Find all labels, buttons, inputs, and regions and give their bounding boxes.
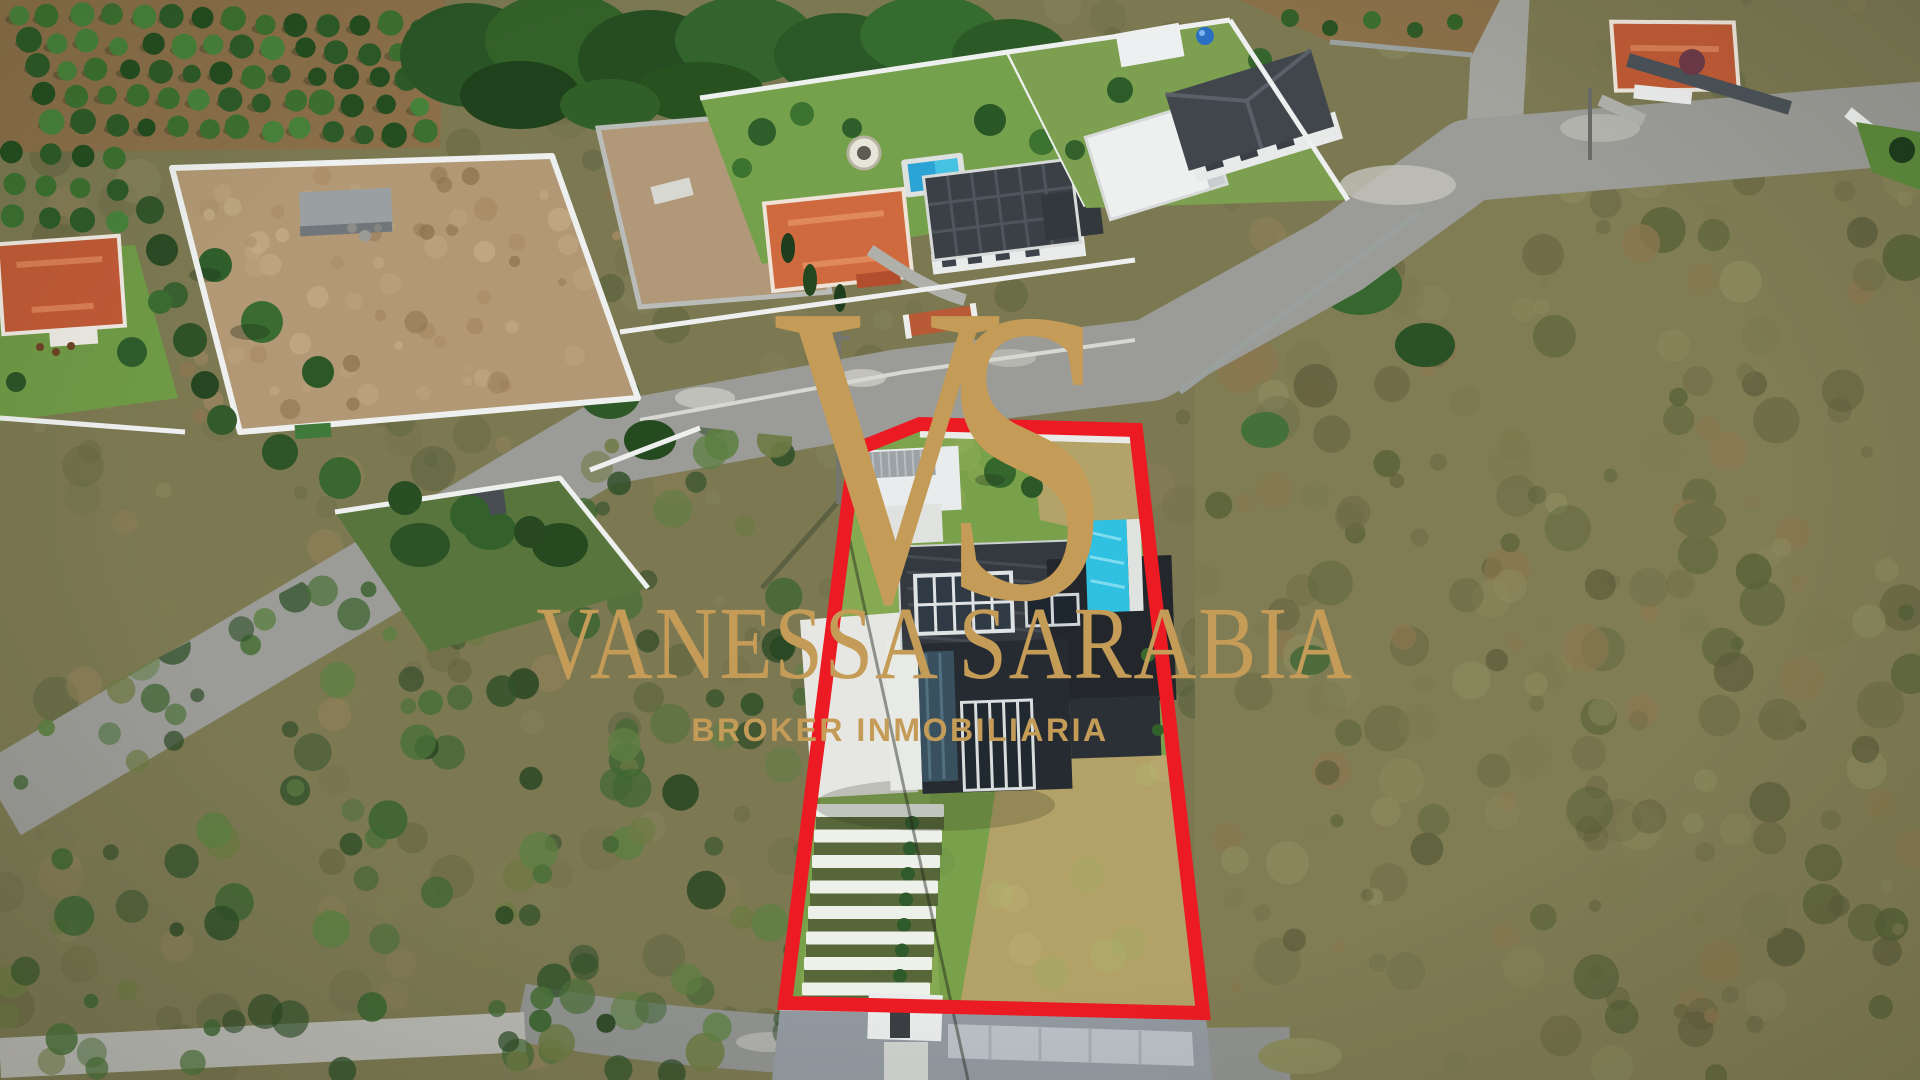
aerial-photo-scene — [0, 0, 1920, 1080]
atrium-grid — [961, 700, 1034, 790]
skylight-grid — [915, 573, 1013, 634]
aerial-photo: V S VANESSA SARABIA BROKER INMOBILIARIA — [0, 0, 1920, 1080]
lot-pool — [1084, 519, 1143, 613]
green-gate — [295, 423, 332, 439]
